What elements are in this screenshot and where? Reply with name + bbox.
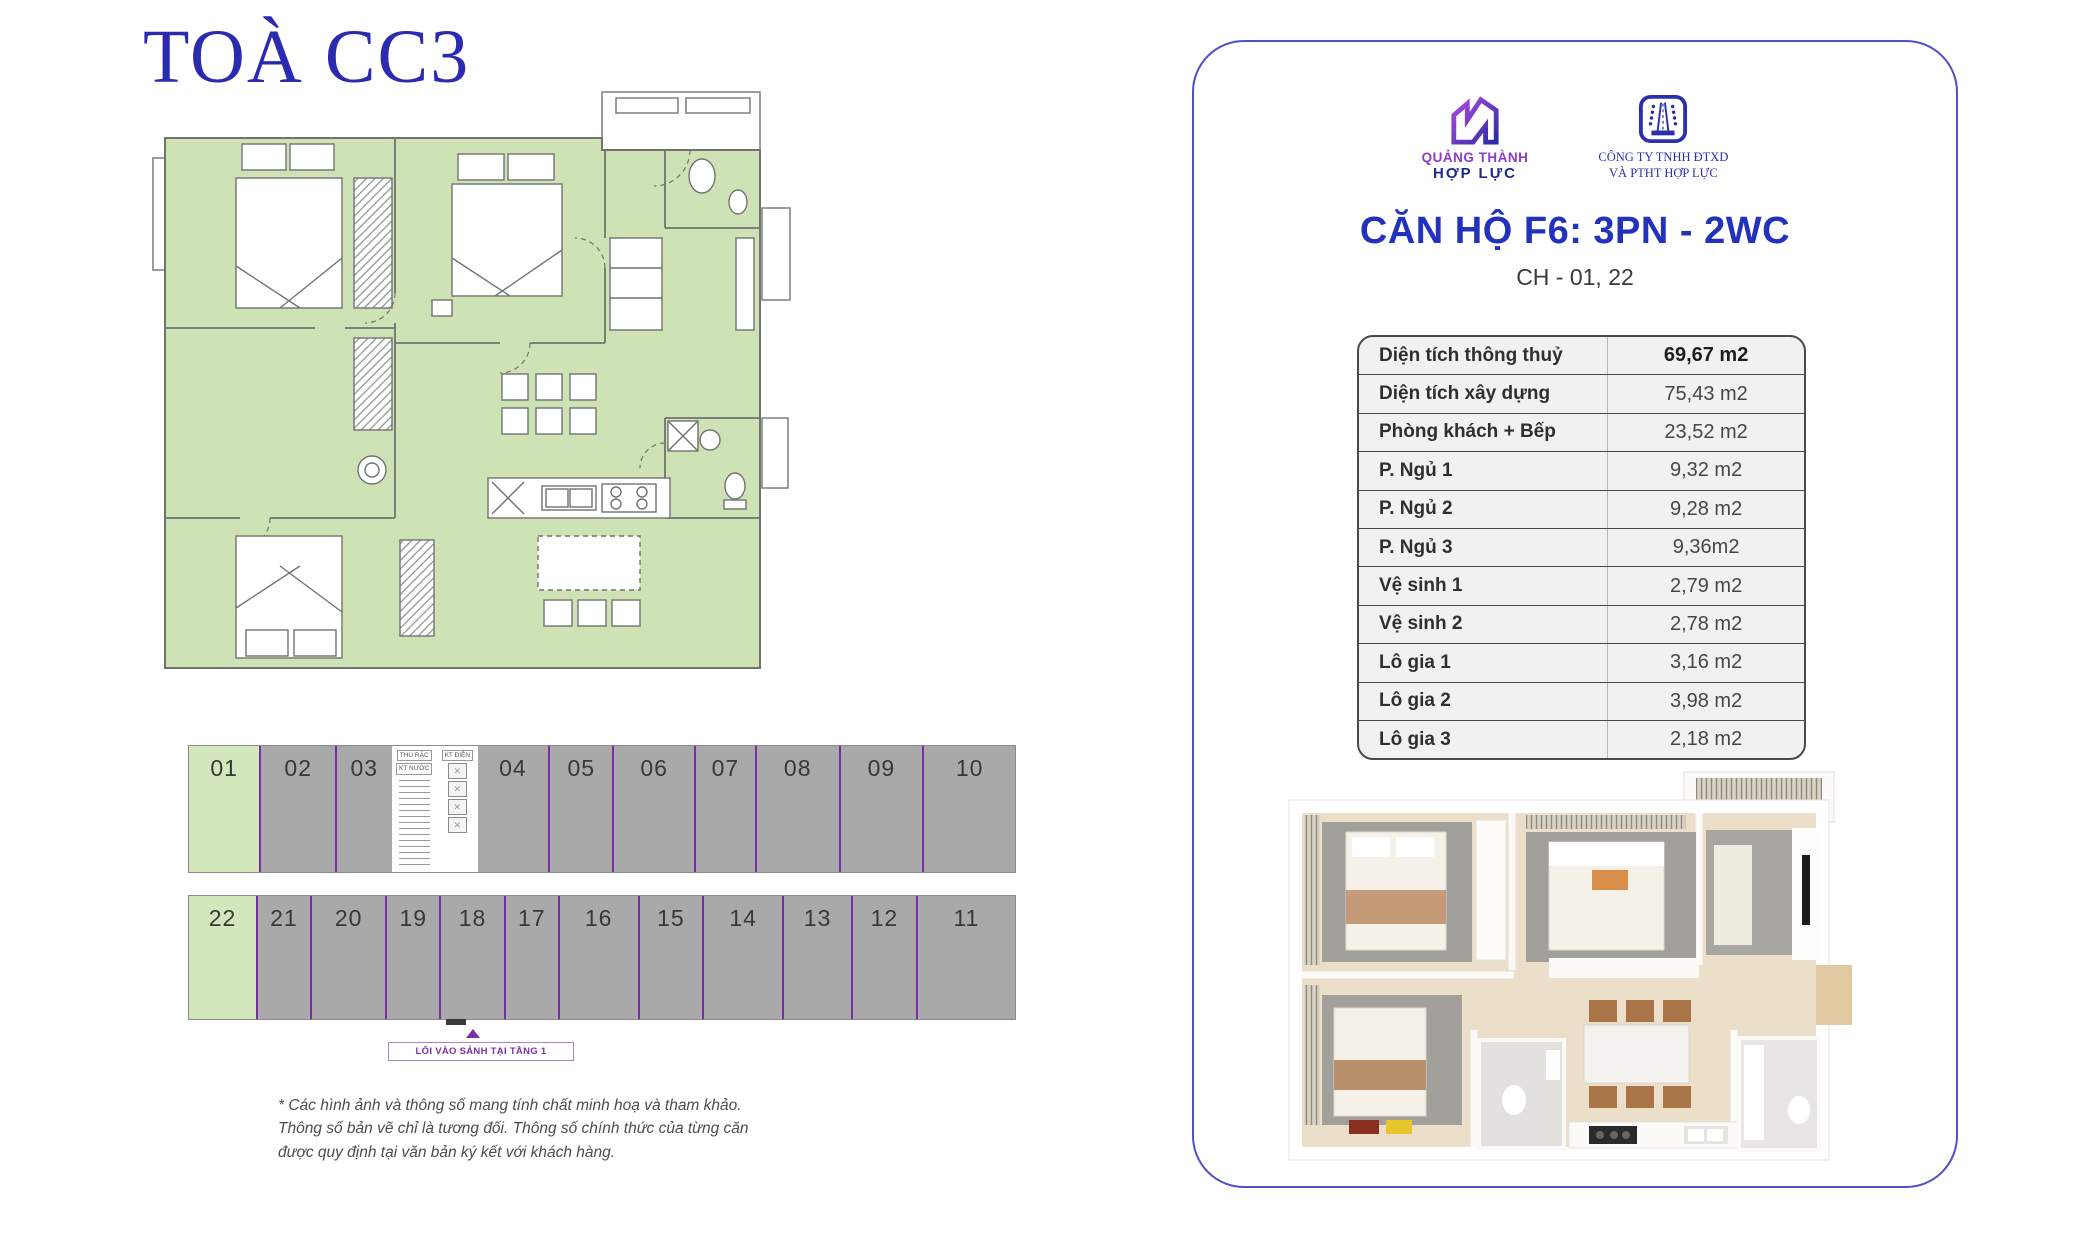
logo-hop-luc: CÔNG TY TNHH ĐTXD VÀ PTHT HỢP LỰC xyxy=(1598,94,1728,181)
unit-number: 19 xyxy=(387,905,439,932)
unit-number: 06 xyxy=(614,755,693,782)
key-plan-top-row: 010203THU RÁCKT NƯỚCKT ĐIỆN✕✕✕✕040506070… xyxy=(188,745,1016,873)
spec-row: Diện tích thông thuỷ69,67 m2 xyxy=(1359,337,1804,374)
key-plan-unit-20: 20 xyxy=(310,896,385,1019)
logo-text: HỢP LỰC xyxy=(1433,165,1517,182)
spec-label: Lô gia 2 xyxy=(1359,683,1608,720)
key-plan-unit-02: 02 xyxy=(259,746,335,872)
logo-text: CÔNG TY TNHH ĐTXD xyxy=(1598,150,1728,166)
key-plan-unit-19: 19 xyxy=(385,896,439,1019)
key-plan-unit-11: 11 xyxy=(916,896,1015,1019)
road-icon xyxy=(1638,94,1688,144)
spec-row: Phòng khách + Bếp23,52 m2 xyxy=(1359,413,1804,451)
key-plan-unit-22: 22 xyxy=(189,896,256,1019)
unit-number: 18 xyxy=(441,905,504,932)
stove xyxy=(602,484,656,512)
logo-text: QUẢNG THÀNH xyxy=(1422,150,1529,165)
unit-number: 20 xyxy=(312,905,385,932)
core-label: KT ĐIỆN xyxy=(442,750,474,761)
key-plan-unit-01: 01 xyxy=(189,746,259,872)
spec-label: Lô gia 3 xyxy=(1359,721,1608,758)
apartment-card: QUẢNG THÀNH HỢP LỰC CÔNG TY TNHH ĐTXD VÀ… xyxy=(1192,40,1958,1188)
key-plan-lifts: KT ĐIỆN✕✕✕✕ xyxy=(437,746,478,872)
unit-number: 07 xyxy=(696,755,755,782)
key-plan-unit-18: 18 xyxy=(439,896,504,1019)
bathroom-sink-2 xyxy=(700,430,720,450)
apartment-3d-render xyxy=(1264,770,1860,1186)
elevator-icon: ✕ xyxy=(448,781,467,797)
key-plan-unit-21: 21 xyxy=(256,896,310,1019)
spec-value: 2,79 m2 xyxy=(1608,575,1804,598)
key-plan-unit-03: 03 xyxy=(335,746,391,872)
unit-number: 16 xyxy=(560,905,638,932)
key-plan-unit-13: 13 xyxy=(782,896,851,1019)
spec-value: 2,18 m2 xyxy=(1608,728,1804,751)
key-plan-unit-09: 09 xyxy=(839,746,923,872)
spec-value: 9,32 m2 xyxy=(1608,459,1804,482)
spec-label: Phòng khách + Bếp xyxy=(1359,414,1608,451)
unit-number: 11 xyxy=(918,905,1015,932)
dining-table xyxy=(538,536,640,590)
key-plan-unit-04: 04 xyxy=(478,746,548,872)
floor-plan-drawing xyxy=(150,88,795,680)
page: TOÀ CC3 xyxy=(0,0,2084,1250)
unit-number: 03 xyxy=(337,755,391,782)
spec-row: Vệ sinh 22,78 m2 xyxy=(1359,605,1804,643)
logo-text: VÀ PTHT HỢP LỰC xyxy=(1609,166,1718,182)
toilet-2 xyxy=(725,473,745,499)
key-plan-unit-06: 06 xyxy=(612,746,693,872)
core-label: KT NƯỚC xyxy=(396,763,433,774)
key-plan-unit-07: 07 xyxy=(694,746,755,872)
unit-number: 02 xyxy=(261,755,335,782)
unit-number: 17 xyxy=(506,905,558,932)
key-plan-unit-10: 10 xyxy=(922,746,1015,872)
key-plan-unit-17: 17 xyxy=(504,896,558,1019)
entrance-label: LỐI VÀO SẢNH TẠI TẦNG 1 xyxy=(388,1042,574,1061)
elevator-icon: ✕ xyxy=(448,817,467,833)
unit-number: 09 xyxy=(841,755,923,782)
bathroom-sink-1 xyxy=(689,159,715,193)
stairs-icon xyxy=(399,780,430,867)
spec-row: P. Ngủ 19,32 m2 xyxy=(1359,451,1804,489)
bed-2 xyxy=(452,184,562,296)
disclaimer-text: * Các hình ảnh và thông số mang tính chấ… xyxy=(278,1094,756,1164)
unit-number: 12 xyxy=(853,905,916,932)
spec-label: Vệ sinh 2 xyxy=(1359,606,1608,643)
spec-label: Diện tích xây dựng xyxy=(1359,375,1608,412)
spec-row: P. Ngủ 29,28 m2 xyxy=(1359,490,1804,528)
key-plan-unit-16: 16 xyxy=(558,896,638,1019)
spec-label: P. Ngủ 2 xyxy=(1359,491,1608,528)
unit-number: 05 xyxy=(550,755,612,782)
spec-label: Diện tích thông thuỷ xyxy=(1359,337,1608,374)
key-plan-unit-12: 12 xyxy=(851,896,916,1019)
spec-value: 2,78 m2 xyxy=(1608,613,1804,636)
spec-table: Diện tích thông thuỷ69,67 m2Diện tích xâ… xyxy=(1357,335,1806,760)
unit-number: 13 xyxy=(784,905,851,932)
apartment-subtitle: CH - 01, 22 xyxy=(1194,264,1956,291)
unit-number: 04 xyxy=(478,755,548,782)
tv-cabinet xyxy=(736,238,754,330)
unit-number: 22 xyxy=(189,905,256,932)
key-plan-unit-05: 05 xyxy=(548,746,612,872)
spec-value: 3,16 m2 xyxy=(1608,651,1804,674)
unit-number: 15 xyxy=(640,905,703,932)
elevator-icon: ✕ xyxy=(448,763,467,779)
spec-value: 23,52 m2 xyxy=(1608,421,1804,444)
bed-1 xyxy=(236,178,342,308)
key-plan-bottom-row: 222120191817161514131211 xyxy=(188,895,1016,1020)
spec-label: Vệ sinh 1 xyxy=(1359,567,1608,604)
unit-number: 21 xyxy=(258,905,310,932)
spec-row: Lô gia 23,98 m2 xyxy=(1359,682,1804,720)
unit-number: 14 xyxy=(704,905,782,932)
key-plan-unit-08: 08 xyxy=(755,746,839,872)
apartment-title: CĂN HỘ F6: 3PN - 2WC xyxy=(1194,210,1956,253)
core-label: THU RÁC xyxy=(397,750,432,761)
key-plan-unit-14: 14 xyxy=(702,896,782,1019)
unit-number: 01 xyxy=(189,755,259,782)
spec-value: 3,98 m2 xyxy=(1608,690,1804,713)
spec-row: P. Ngủ 39,36m2 xyxy=(1359,528,1804,566)
unit-number: 10 xyxy=(924,755,1015,782)
logo-row: QUẢNG THÀNH HỢP LỰC CÔNG TY TNHH ĐTXD VÀ… xyxy=(1194,94,1956,182)
wardrobe-1 xyxy=(354,178,392,308)
toilet-1 xyxy=(729,190,747,214)
spec-row: Lô gia 13,16 m2 xyxy=(1359,643,1804,681)
logo-quang-thanh: QUẢNG THÀNH HỢP LỰC xyxy=(1422,94,1529,182)
spec-row: Lô gia 32,18 m2 xyxy=(1359,720,1804,758)
sofa xyxy=(610,238,662,330)
key-plan-core: THU RÁCKT NƯỚC xyxy=(392,746,437,872)
spec-value: 75,43 m2 xyxy=(1608,383,1804,406)
entrance-arrow-icon xyxy=(466,1029,480,1038)
spec-label: Lô gia 1 xyxy=(1359,644,1608,681)
spec-label: P. Ngủ 3 xyxy=(1359,529,1608,566)
spec-label: P. Ngủ 1 xyxy=(1359,452,1608,489)
wardrobe-3 xyxy=(400,540,434,636)
spec-row: Vệ sinh 12,79 m2 xyxy=(1359,566,1804,604)
entrance-marker xyxy=(446,1019,466,1025)
unit-number: 08 xyxy=(757,755,839,782)
key-plan-unit-15: 15 xyxy=(638,896,703,1019)
building-icon xyxy=(1446,94,1504,146)
key-plan: 010203THU RÁCKT NƯỚCKT ĐIỆN✕✕✕✕040506070… xyxy=(188,745,1016,1095)
spec-value: 9,28 m2 xyxy=(1608,498,1804,521)
spec-row: Diện tích xây dựng75,43 m2 xyxy=(1359,374,1804,412)
hall-closet xyxy=(354,338,392,430)
spec-value: 69,67 m2 xyxy=(1608,344,1804,367)
spec-value: 9,36m2 xyxy=(1608,536,1804,559)
elevator-icon: ✕ xyxy=(448,799,467,815)
